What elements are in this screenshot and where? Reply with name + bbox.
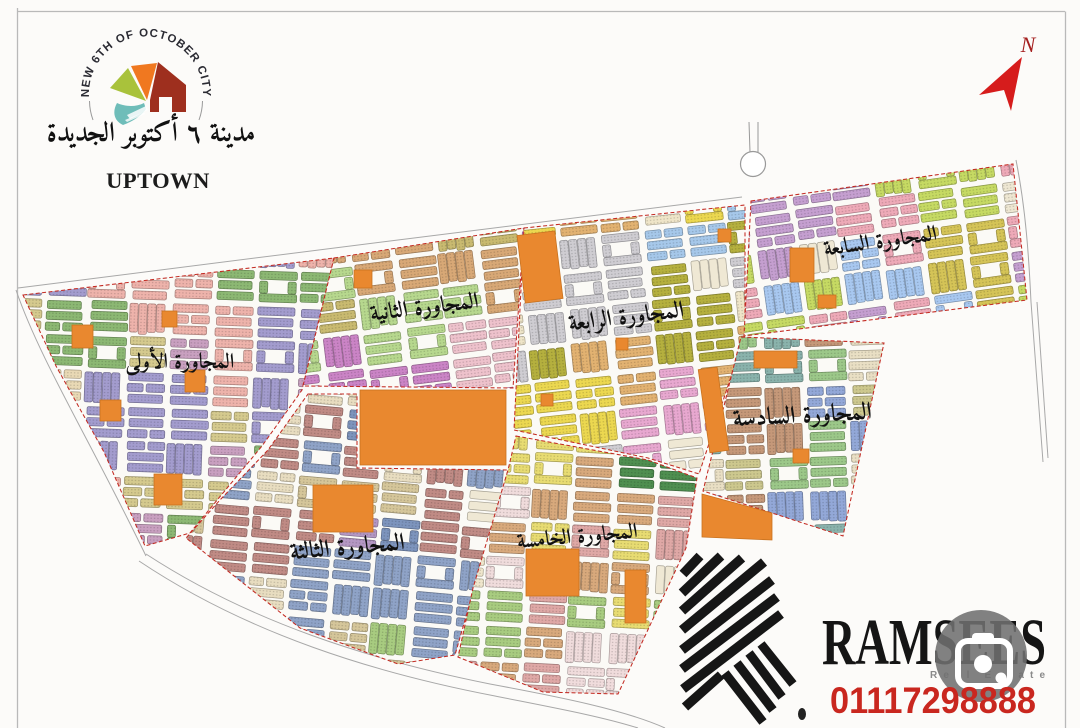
svg-text:UPTOWN: UPTOWN [106,168,210,193]
svg-text:N: N [1020,32,1037,57]
svg-text:01117298888: 01117298888 [830,680,1036,721]
